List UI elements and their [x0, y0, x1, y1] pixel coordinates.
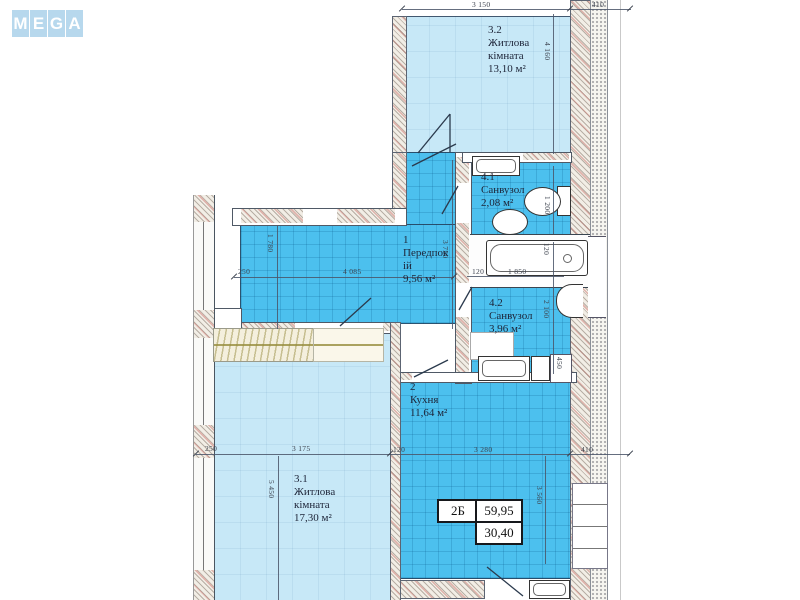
mega-logo: MEGA: [12, 10, 84, 37]
wall-living1-kitchen: [390, 322, 401, 600]
wardrobe: [213, 328, 315, 362]
shaft-line: [573, 548, 607, 549]
room-label-bath1: 4.1 Санвузол 2,08 м²: [481, 171, 551, 210]
wall-hatch-block: [456, 223, 469, 283]
info-table-living-area: 30,40: [475, 521, 523, 545]
logo-letter: A: [66, 10, 83, 37]
floor-plan-image: 3 1504104 1601 2001201 8501202 100450250…: [0, 0, 800, 600]
dimension-line: [452, 160, 453, 329]
room-number: 3.1: [294, 473, 360, 486]
room-area: 3,96 м²: [489, 323, 559, 336]
room-number: 2: [410, 381, 480, 394]
dimension-tick: [627, 450, 633, 456]
wardrobe-rail: [214, 344, 314, 346]
total-area-value: 59,95: [484, 503, 513, 518]
hall-arm: [405, 152, 457, 226]
room-label-living1: 3.1 Житлова кімната 17,30 м²: [294, 473, 360, 525]
logo-letter: G: [48, 10, 65, 37]
wall-hatch-block: [194, 570, 214, 600]
room-name: Санвузол: [481, 184, 551, 197]
info-table-total-area: 59,95: [475, 499, 523, 523]
plan-outer-line: [620, 0, 621, 600]
room-number: 4.1: [481, 171, 551, 184]
room-label-living2: 3.2 Житлова кімната 13,10 м²: [488, 24, 554, 76]
room-number: 4.2: [489, 297, 559, 310]
logo-letter: M: [12, 10, 29, 37]
wall-right-recess: [588, 236, 606, 318]
dimension-line: [545, 456, 546, 564]
dimension-line: [570, 9, 631, 10]
door-opening-bath2: [456, 286, 469, 312]
cabinet-unit: [531, 356, 550, 381]
stove-top: [533, 583, 566, 596]
room-area: 2,08 м²: [481, 197, 551, 210]
room-name: Передпокій: [403, 247, 449, 273]
window-line: [203, 458, 204, 570]
room-name: Кухня: [410, 394, 480, 407]
wall-hall-top: [232, 208, 407, 226]
shaft-line: [573, 526, 607, 527]
dimension-line: [277, 226, 278, 329]
wall-hatch-block: [194, 195, 214, 222]
room-area: 11,64 м²: [410, 407, 480, 420]
dimension-tick: [627, 5, 633, 11]
room-name: Житлова кімната: [294, 486, 360, 512]
door-opening-kitchen: [412, 373, 450, 380]
door-opening-bath1: [456, 184, 469, 216]
bathtub: [486, 240, 588, 276]
dimension-line: [402, 9, 570, 10]
wardrobe-extension: [313, 328, 384, 362]
dimension-line: [467, 276, 564, 277]
living-area-value: 30,40: [484, 525, 513, 540]
washing-machine-drum: [482, 360, 526, 377]
washing-machine-2: [478, 356, 530, 381]
room-area: 13,10 м²: [488, 63, 554, 76]
room-name: Житлова кімната: [488, 37, 554, 63]
sink-bath2: [556, 284, 583, 318]
wall-hatch-block: [456, 317, 469, 379]
dimension-line: [196, 454, 630, 455]
room-area: 9,56 м²: [403, 273, 449, 286]
wardrobe-rail: [314, 344, 383, 346]
unit-label: 2Б: [451, 503, 465, 518]
window-line: [203, 222, 204, 310]
wall-left-band: [193, 195, 215, 600]
room-label-hall: 1 Передпокій 9,56 м²: [403, 234, 449, 286]
kitchen-stove: [529, 580, 570, 599]
dimension-line: [278, 456, 279, 600]
bathtub-drain: [563, 254, 572, 263]
wall-entrance-pier: [392, 152, 407, 212]
sink-bath1: [492, 209, 528, 235]
wall-hatch-block: [194, 310, 214, 338]
riser-shaft: [572, 483, 608, 569]
dimension-label: 3 150: [472, 0, 490, 9]
room-name: Санвузол: [489, 310, 559, 323]
wall-hatch-block: [523, 153, 569, 160]
room-living1: [213, 332, 392, 600]
shaft-line: [573, 504, 607, 505]
wall-living2-left: [392, 16, 407, 154]
kitchen-counter: [400, 580, 485, 599]
room-number: 3.2: [488, 24, 554, 37]
room-area: 17,30 м²: [294, 512, 360, 525]
room-label-kitchen: 2 Кухня 11,64 м²: [410, 381, 480, 420]
wall-hatch-block: [337, 209, 395, 223]
info-table-unit: 2Б: [437, 499, 479, 523]
room-label-bath2: 4.2 Санвузол 3,96 м²: [489, 297, 559, 336]
window-line: [203, 338, 204, 425]
wall-hatch-block: [241, 209, 303, 223]
dimension-line: [553, 166, 554, 234]
logo-letter: E: [30, 10, 47, 37]
room-number: 1: [403, 234, 449, 247]
